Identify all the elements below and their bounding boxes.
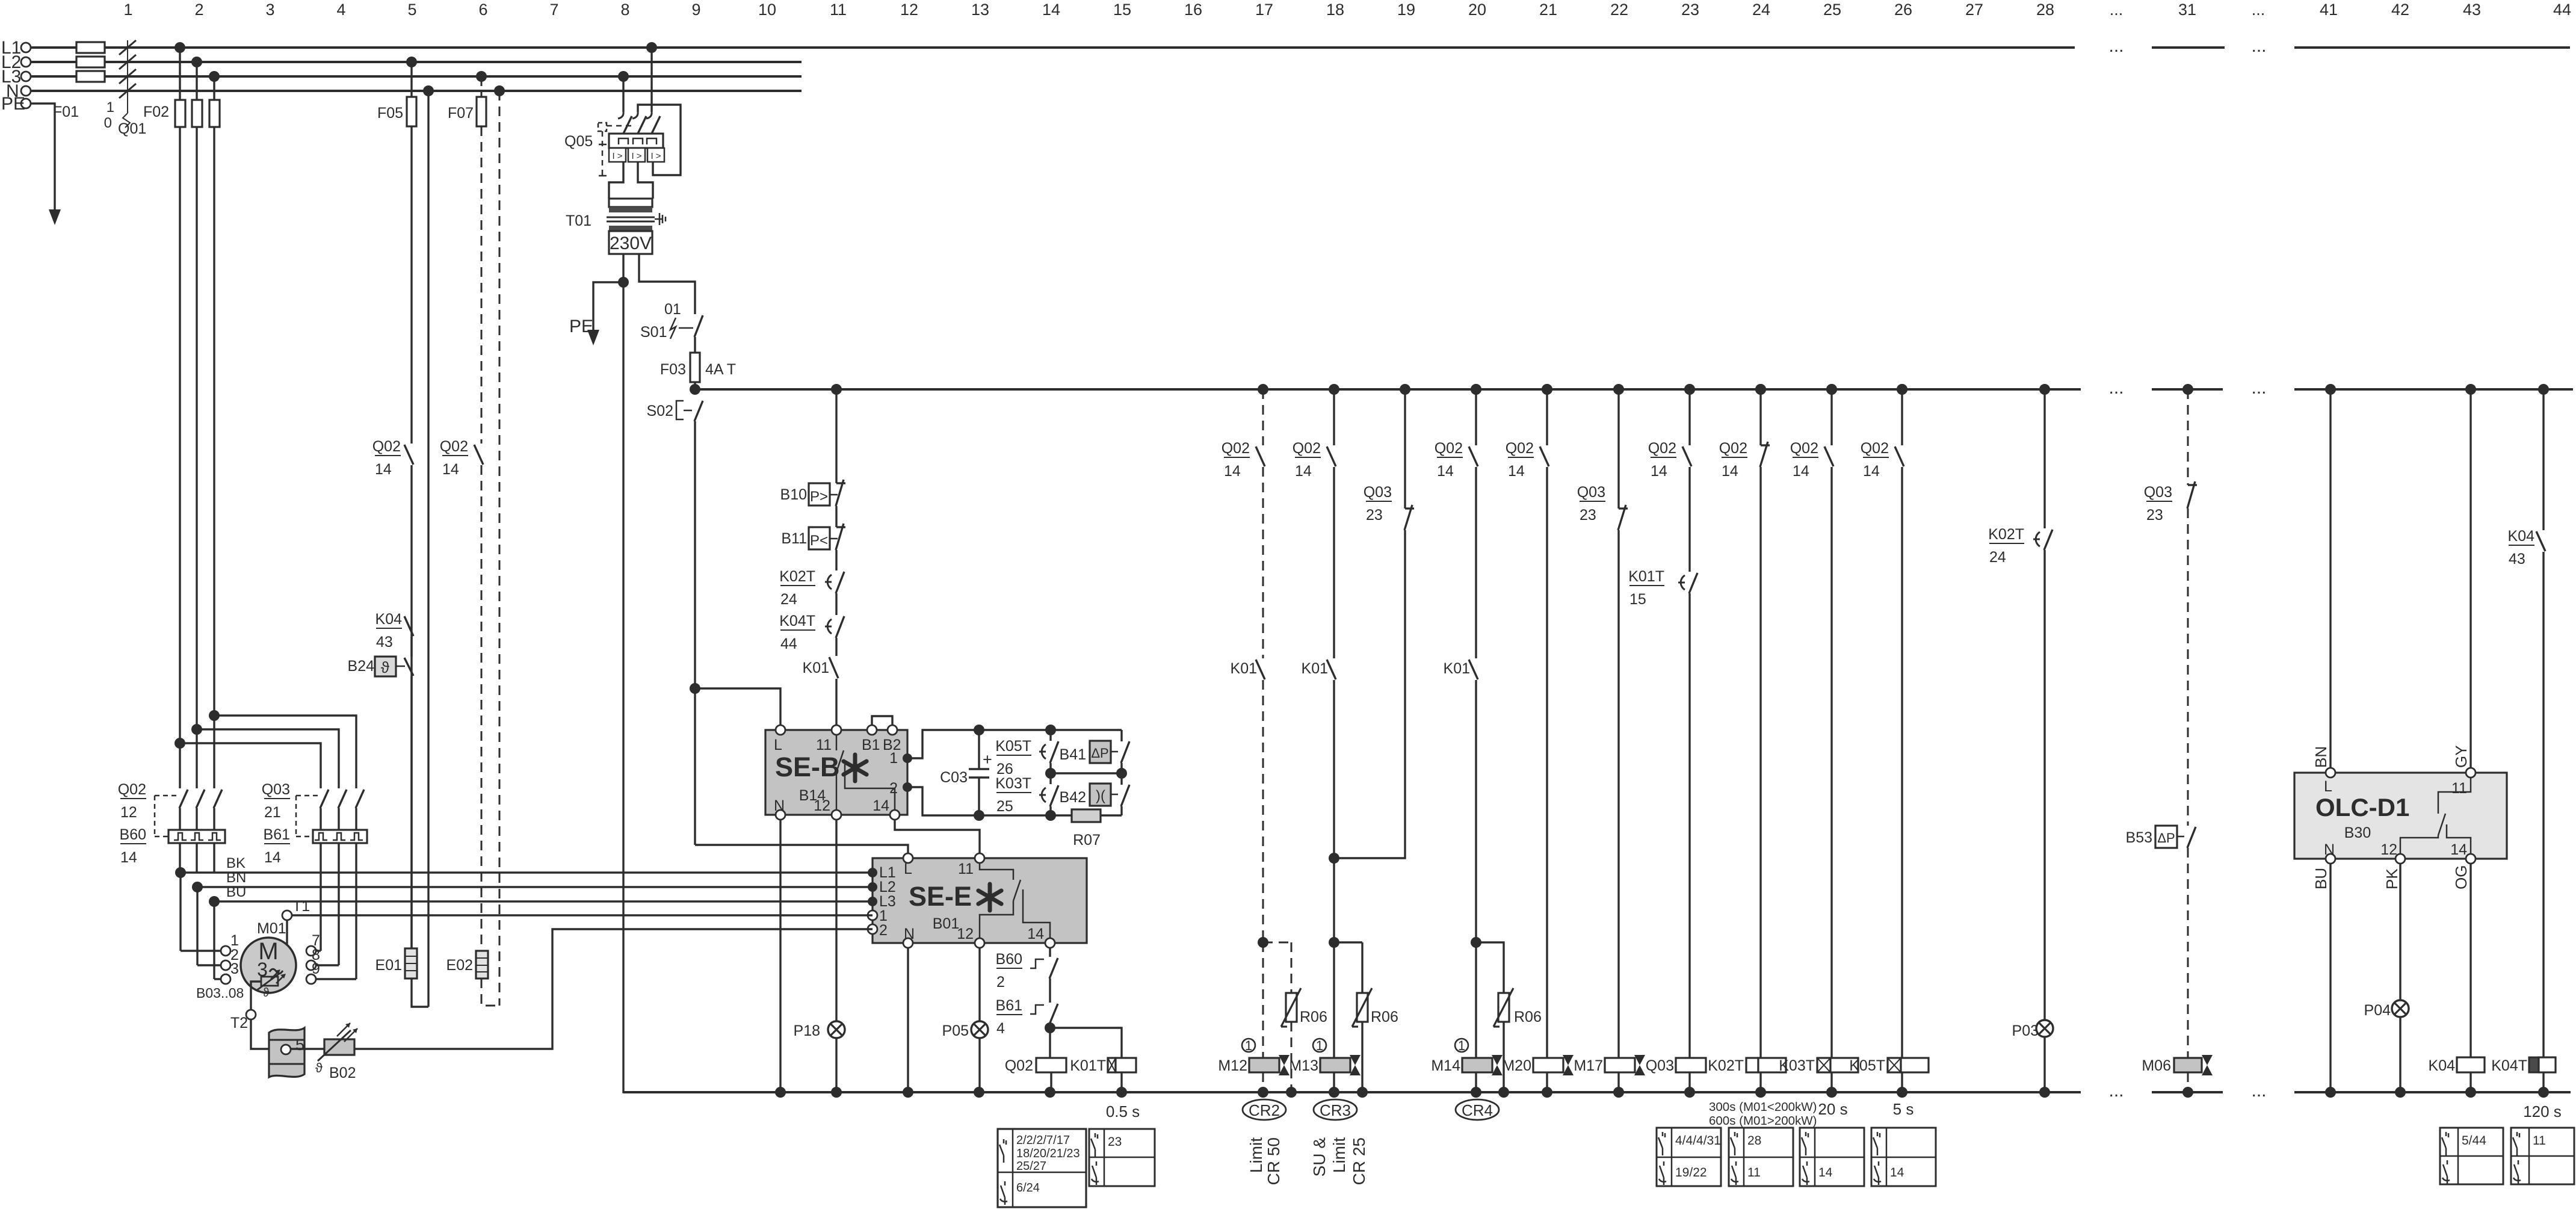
svg-text:11: 11 <box>958 861 974 877</box>
svg-text:Q03: Q03 <box>1646 1057 1674 1074</box>
svg-text:SU &: SU & <box>1310 1137 1329 1177</box>
svg-text:23: 23 <box>1366 507 1383 524</box>
svg-text:CR 25: CR 25 <box>1350 1137 1368 1185</box>
svg-text:21: 21 <box>1539 1 1557 19</box>
svg-text:P03: P03 <box>2012 1022 2039 1039</box>
svg-text:Q02: Q02 <box>1293 440 1321 457</box>
svg-text:Q03: Q03 <box>1577 484 1605 501</box>
svg-text:...: ... <box>2252 1 2266 19</box>
svg-text:Q02: Q02 <box>118 781 146 798</box>
svg-text:Q02: Q02 <box>1005 1057 1033 1074</box>
svg-text:R06: R06 <box>1371 1009 1398 1025</box>
svg-text:K04T: K04T <box>2491 1057 2527 1074</box>
svg-text:31: 31 <box>2178 1 2196 19</box>
svg-text:B60: B60 <box>996 951 1022 968</box>
svg-text:B60: B60 <box>120 826 146 843</box>
svg-text:18/20/21/23: 18/20/21/23 <box>1016 1147 1080 1160</box>
svg-text:Q03: Q03 <box>2144 484 2172 501</box>
svg-text:230V: 230V <box>610 233 652 253</box>
svg-text:F05: F05 <box>377 105 403 122</box>
svg-text:BU: BU <box>2312 868 2330 889</box>
svg-text:12: 12 <box>814 797 830 814</box>
svg-text:14: 14 <box>120 849 137 866</box>
svg-text:K01: K01 <box>1444 660 1470 677</box>
svg-text:28: 28 <box>2036 1 2054 19</box>
svg-text:R07: R07 <box>1073 832 1101 849</box>
svg-text:L: L <box>774 737 782 753</box>
svg-text:20 s: 20 s <box>1818 1100 1847 1118</box>
svg-text:K01: K01 <box>803 660 829 676</box>
svg-text:24: 24 <box>1752 1 1770 19</box>
svg-text:B24: B24 <box>348 658 375 675</box>
svg-text:14: 14 <box>1042 1 1060 19</box>
svg-text:K03T: K03T <box>1779 1057 1815 1074</box>
svg-text:14: 14 <box>1508 463 1525 480</box>
svg-text:15: 15 <box>1629 591 1646 608</box>
svg-text:ϑ: ϑ <box>381 658 390 676</box>
svg-text:K03T: K03T <box>995 775 1031 792</box>
svg-text:CR3: CR3 <box>1320 1101 1351 1119</box>
svg-text:22: 22 <box>1610 1 1628 19</box>
svg-text:11: 11 <box>2533 1134 2546 1148</box>
svg-text:K04: K04 <box>2429 1057 2456 1074</box>
svg-text:CR 50: CR 50 <box>1264 1137 1283 1185</box>
svg-text:K05T: K05T <box>1849 1057 1885 1074</box>
svg-text:11: 11 <box>1747 1166 1761 1179</box>
svg-text:0.5 s: 0.5 s <box>1106 1102 1140 1121</box>
svg-text:K01T: K01T <box>1070 1057 1106 1074</box>
svg-text:44: 44 <box>2553 1 2571 19</box>
svg-text:OG: OG <box>2452 865 2470 889</box>
svg-text:5: 5 <box>407 1 416 19</box>
svg-text:Q02: Q02 <box>1506 440 1534 457</box>
svg-text:B42: B42 <box>1060 789 1086 806</box>
svg-text:Q02: Q02 <box>440 438 468 455</box>
svg-text:4A T: 4A T <box>705 361 736 378</box>
svg-text:E02: E02 <box>446 957 473 974</box>
svg-text:14: 14 <box>1224 463 1241 480</box>
svg-text:0: 0 <box>104 115 112 131</box>
svg-text:42: 42 <box>2391 1 2409 19</box>
svg-text:M20: M20 <box>1502 1057 1531 1074</box>
svg-text:M13: M13 <box>1289 1057 1318 1074</box>
svg-text:...: ... <box>2251 378 2266 398</box>
svg-text:B01: B01 <box>933 915 959 932</box>
svg-text:B1: B1 <box>862 737 880 753</box>
svg-text:BK: BK <box>226 855 246 871</box>
svg-text:26: 26 <box>1894 1 1912 19</box>
svg-text:ϑ: ϑ <box>315 1060 323 1075</box>
svg-text:4/4/4/31: 4/4/4/31 <box>1675 1134 1721 1148</box>
svg-text:12: 12 <box>900 1 918 19</box>
svg-text:Q03: Q03 <box>1364 484 1392 501</box>
svg-text:BU: BU <box>226 884 246 900</box>
svg-text:K01T: K01T <box>1628 568 1664 585</box>
svg-text:Q05: Q05 <box>564 133 593 150</box>
svg-text:M01: M01 <box>257 920 286 937</box>
svg-text:25: 25 <box>1823 1 1841 19</box>
svg-text:I >: I > <box>650 151 661 161</box>
svg-text:24: 24 <box>1989 549 2006 566</box>
svg-text:23: 23 <box>1681 1 1699 19</box>
svg-text:B53: B53 <box>2126 829 2152 846</box>
svg-text:PE: PE <box>1 94 25 114</box>
svg-text:23: 23 <box>1108 1135 1122 1149</box>
svg-text:P<: P< <box>810 533 828 549</box>
svg-text:8: 8 <box>620 1 629 19</box>
svg-text:Q02: Q02 <box>1648 440 1676 457</box>
svg-text:BN: BN <box>226 870 246 886</box>
svg-text:T1: T1 <box>292 898 310 915</box>
svg-text:5: 5 <box>295 1036 304 1054</box>
svg-text:21: 21 <box>264 804 281 821</box>
svg-text:F02: F02 <box>143 104 169 120</box>
svg-text:120 s: 120 s <box>2523 1102 2562 1121</box>
svg-text:12: 12 <box>120 804 137 821</box>
svg-text:B10: B10 <box>780 486 807 503</box>
svg-text:R06: R06 <box>1514 1009 1542 1025</box>
svg-text:GY: GY <box>2452 745 2470 768</box>
svg-text:14: 14 <box>1027 926 1044 942</box>
svg-text:23: 23 <box>1580 507 1596 524</box>
svg-text:B30: B30 <box>2344 824 2371 841</box>
svg-text:43: 43 <box>376 634 393 651</box>
svg-text:6/24: 6/24 <box>1016 1181 1040 1195</box>
svg-text:Q02: Q02 <box>1861 440 1889 457</box>
svg-text:1: 1 <box>1245 1038 1252 1053</box>
svg-text:Limit: Limit <box>1330 1137 1348 1173</box>
svg-text:16: 16 <box>1184 1 1202 19</box>
svg-text:2: 2 <box>879 922 888 939</box>
svg-text:...: ... <box>2251 36 2266 56</box>
svg-text:10: 10 <box>758 1 776 19</box>
svg-text:K01: K01 <box>1231 660 1257 677</box>
svg-text:PE: PE <box>569 317 593 336</box>
svg-text:K01: K01 <box>1302 660 1328 677</box>
svg-text:ϑ: ϑ <box>263 986 270 1000</box>
svg-text:P>: P> <box>810 489 828 505</box>
svg-text:L: L <box>2324 778 2332 795</box>
svg-text:12: 12 <box>957 926 974 942</box>
svg-text:19/22: 19/22 <box>1675 1166 1707 1179</box>
svg-text:C03: C03 <box>940 769 968 786</box>
svg-text:6: 6 <box>478 1 487 19</box>
svg-text:5 s: 5 s <box>1893 1100 1914 1118</box>
svg-text:OLC-D1: OLC-D1 <box>2315 793 2409 821</box>
svg-text:Q02: Q02 <box>1719 440 1747 457</box>
svg-text:P18: P18 <box>794 1022 820 1039</box>
svg-text:K04: K04 <box>375 611 403 628</box>
svg-text:F01: F01 <box>53 104 79 120</box>
svg-text:14: 14 <box>442 461 459 478</box>
svg-text:I >: I > <box>631 151 641 161</box>
svg-text:11: 11 <box>816 737 832 753</box>
svg-text:PK: PK <box>2383 868 2401 889</box>
svg-text:B61: B61 <box>264 826 290 843</box>
svg-text:B61: B61 <box>996 997 1022 1014</box>
svg-text:11: 11 <box>830 1 847 19</box>
svg-text:E01: E01 <box>375 957 402 974</box>
svg-text:CR4: CR4 <box>1462 1101 1493 1119</box>
svg-text:CR2: CR2 <box>1249 1101 1280 1119</box>
svg-text:300s (M01<200kW): 300s (M01<200kW) <box>1709 1100 1817 1114</box>
svg-text:...: ... <box>2108 36 2124 56</box>
svg-text:F03: F03 <box>660 361 686 378</box>
svg-text:P04: P04 <box>2364 1002 2391 1019</box>
svg-text:20: 20 <box>1468 1 1486 19</box>
svg-text:11: 11 <box>2451 780 2467 797</box>
svg-text:S02: S02 <box>647 403 673 419</box>
svg-text:4: 4 <box>336 1 345 19</box>
svg-text:1: 1 <box>889 750 898 767</box>
svg-text:9: 9 <box>312 960 320 977</box>
svg-text:B41: B41 <box>1060 746 1086 763</box>
svg-text:R06: R06 <box>1300 1009 1327 1025</box>
svg-text:1: 1 <box>123 1 132 19</box>
svg-text:14: 14 <box>873 797 889 814</box>
svg-text:1: 1 <box>107 99 114 116</box>
svg-text:18: 18 <box>1326 1 1344 19</box>
svg-text:BN: BN <box>2312 746 2330 768</box>
svg-text:14: 14 <box>1863 463 1880 480</box>
svg-text:Limit: Limit <box>1247 1137 1265 1173</box>
svg-text:...: ... <box>2108 378 2124 398</box>
svg-text:3: 3 <box>265 1 274 19</box>
svg-text:17: 17 <box>1255 1 1273 19</box>
svg-text:M14: M14 <box>1431 1057 1460 1074</box>
svg-text:4: 4 <box>996 1020 1005 1037</box>
svg-text:12: 12 <box>2380 841 2397 858</box>
svg-text:24: 24 <box>780 591 797 608</box>
svg-text:14: 14 <box>1793 463 1809 480</box>
svg-text:I >: I > <box>612 151 622 161</box>
svg-text:13: 13 <box>971 1 989 19</box>
svg-text:Q02: Q02 <box>1790 440 1818 457</box>
svg-text:25: 25 <box>996 798 1013 815</box>
svg-text:Q02: Q02 <box>372 438 401 455</box>
svg-text:14: 14 <box>264 849 281 866</box>
svg-text:B03..08: B03..08 <box>196 985 244 1001</box>
svg-text:14: 14 <box>1722 463 1738 480</box>
svg-text:)(: )( <box>1096 788 1105 804</box>
svg-text:P05: P05 <box>942 1022 969 1039</box>
svg-text:ΔP: ΔP <box>2157 830 2175 846</box>
svg-text:1: 1 <box>1316 1038 1323 1053</box>
svg-text:B02: B02 <box>329 1065 356 1081</box>
svg-text:5/44: 5/44 <box>2462 1134 2486 1148</box>
svg-text:F07: F07 <box>448 105 474 122</box>
svg-text:14: 14 <box>1818 1166 1833 1179</box>
svg-text:ΔP: ΔP <box>1091 746 1108 761</box>
svg-text:43: 43 <box>2463 1 2481 19</box>
svg-text:...: ... <box>2251 1081 2266 1101</box>
svg-text:2: 2 <box>194 1 203 19</box>
svg-text:19: 19 <box>1397 1 1415 19</box>
svg-text:K02T: K02T <box>1988 526 2024 543</box>
svg-text:M12: M12 <box>1218 1057 1247 1074</box>
svg-text:K02T: K02T <box>1708 1057 1744 1074</box>
svg-text:25/27: 25/27 <box>1016 1160 1046 1173</box>
svg-text:14: 14 <box>375 461 392 478</box>
svg-text:23: 23 <box>2146 507 2163 524</box>
svg-text:1: 1 <box>1458 1038 1465 1053</box>
svg-text:3: 3 <box>230 960 239 977</box>
svg-text:T01: T01 <box>566 212 591 229</box>
svg-text:...: ... <box>2110 1 2124 19</box>
svg-text:T2: T2 <box>230 1015 248 1031</box>
svg-text:7: 7 <box>549 1 558 19</box>
svg-text:41: 41 <box>2320 1 2338 19</box>
svg-text:M06: M06 <box>2142 1057 2171 1074</box>
svg-text:Q02: Q02 <box>1435 440 1463 457</box>
svg-text:Q01: Q01 <box>118 120 146 137</box>
svg-text:SE-B: SE-B <box>775 752 840 782</box>
svg-text:600s (M01>200kW): 600s (M01>200kW) <box>1709 1114 1817 1128</box>
svg-text:9: 9 <box>691 1 700 19</box>
svg-text:K04T: K04T <box>779 613 815 629</box>
svg-text:Q03: Q03 <box>262 781 290 798</box>
svg-text:14: 14 <box>1890 1166 1904 1179</box>
svg-text:43: 43 <box>2509 551 2525 567</box>
svg-text:28: 28 <box>1747 1134 1761 1148</box>
svg-text:15: 15 <box>1113 1 1131 19</box>
svg-text:14: 14 <box>1437 463 1454 480</box>
svg-text:B11: B11 <box>781 530 807 547</box>
svg-text:27: 27 <box>1965 1 1983 19</box>
svg-text:K05T: K05T <box>995 738 1031 755</box>
svg-text:01: 01 <box>664 301 681 318</box>
svg-text:S01: S01 <box>640 324 667 341</box>
svg-text:SE-E: SE-E <box>909 881 972 912</box>
svg-text:2: 2 <box>996 974 1005 991</box>
svg-text:K02T: K02T <box>779 568 815 585</box>
svg-text:14: 14 <box>1295 463 1312 480</box>
svg-text:2/2/2/7/17: 2/2/2/7/17 <box>1016 1134 1070 1147</box>
svg-text:+: + <box>983 750 992 768</box>
svg-text:...: ... <box>2108 1081 2124 1101</box>
svg-text:Q02: Q02 <box>1222 440 1250 457</box>
svg-text:44: 44 <box>780 635 797 652</box>
svg-text:14: 14 <box>1651 463 1667 480</box>
svg-text:K04: K04 <box>2508 528 2535 545</box>
svg-text:M17: M17 <box>1574 1057 1603 1074</box>
svg-text:14: 14 <box>2450 841 2467 858</box>
